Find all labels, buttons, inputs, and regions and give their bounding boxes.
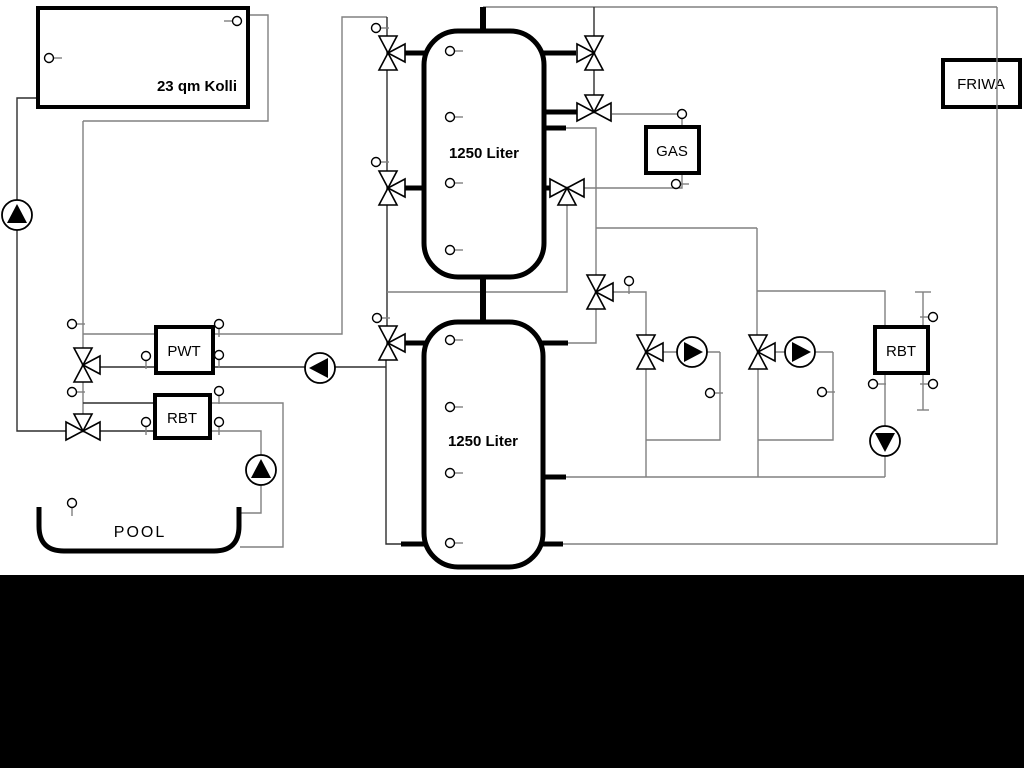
pool-label: POOL [114,524,166,541]
rbt-heating-pump-icon [870,426,900,456]
pwt-label: PWT [167,343,200,360]
pool-pump-icon [246,455,276,485]
buffer-charge-pump-icon [305,353,335,383]
solar-pump-icon [2,200,32,230]
rbt-heating-label: RBT [886,343,916,360]
schematic-canvas: 23 qm Kolli 1250 Liter 1250 Liter GAS FR… [0,0,1024,768]
sensor-gas-supply-icon [678,110,687,119]
solar-collector-label: 23 qm Kolli [157,78,237,95]
heating-circuit1-pump-icon [677,337,707,367]
buffer-tank-top-label: 1250 Liter [449,145,519,162]
gas-boiler-label: GAS [656,143,688,160]
rbt-pool-label: RBT [167,410,197,427]
heating-circuit2-pump-icon [785,337,815,367]
buffer-tank-bottom-label: 1250 Liter [448,433,518,450]
letterbox-bottom [0,575,1024,768]
friwa-label: FRIWA [957,76,1005,93]
